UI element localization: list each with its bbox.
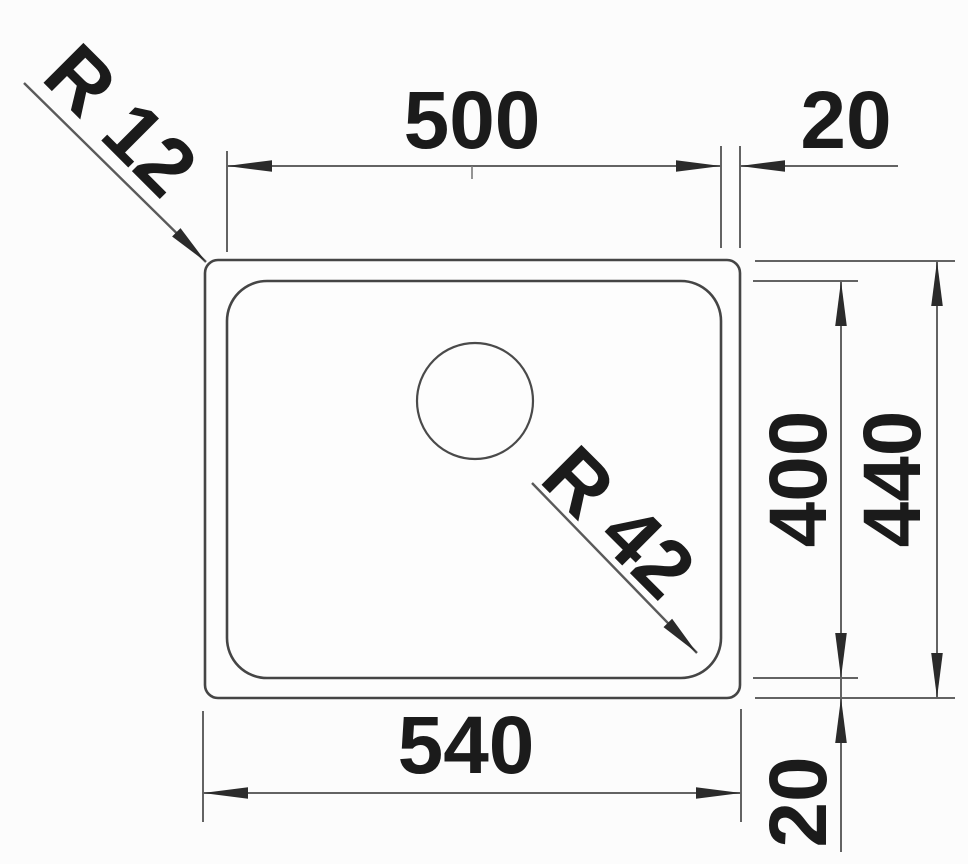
arrow-left [227,160,272,172]
arrow-up [931,261,943,306]
label-height-outer: 440 [852,411,934,548]
label-rim-bottom-right: 20 [758,756,840,847]
technical-drawing-canvas: 500 20 400 440 540 20 R 12 R 42 [0,0,968,864]
arrow-up-pointing [835,698,847,743]
arrow-up [835,281,847,326]
leader-arrow [172,228,206,262]
sink-outer-edge [205,260,740,698]
arrow-left [203,787,248,799]
sink-outline [205,260,740,698]
arrow-right [676,160,721,172]
label-height-inner: 400 [758,411,840,548]
arrow-down [931,653,943,698]
arrow-left-pointing [740,160,785,172]
label-width-inner: 500 [404,80,541,162]
label-width-outer: 540 [398,705,535,787]
label-rim-top-right: 20 [800,80,891,162]
arrow-right [696,787,741,799]
arrow-down [835,633,847,678]
